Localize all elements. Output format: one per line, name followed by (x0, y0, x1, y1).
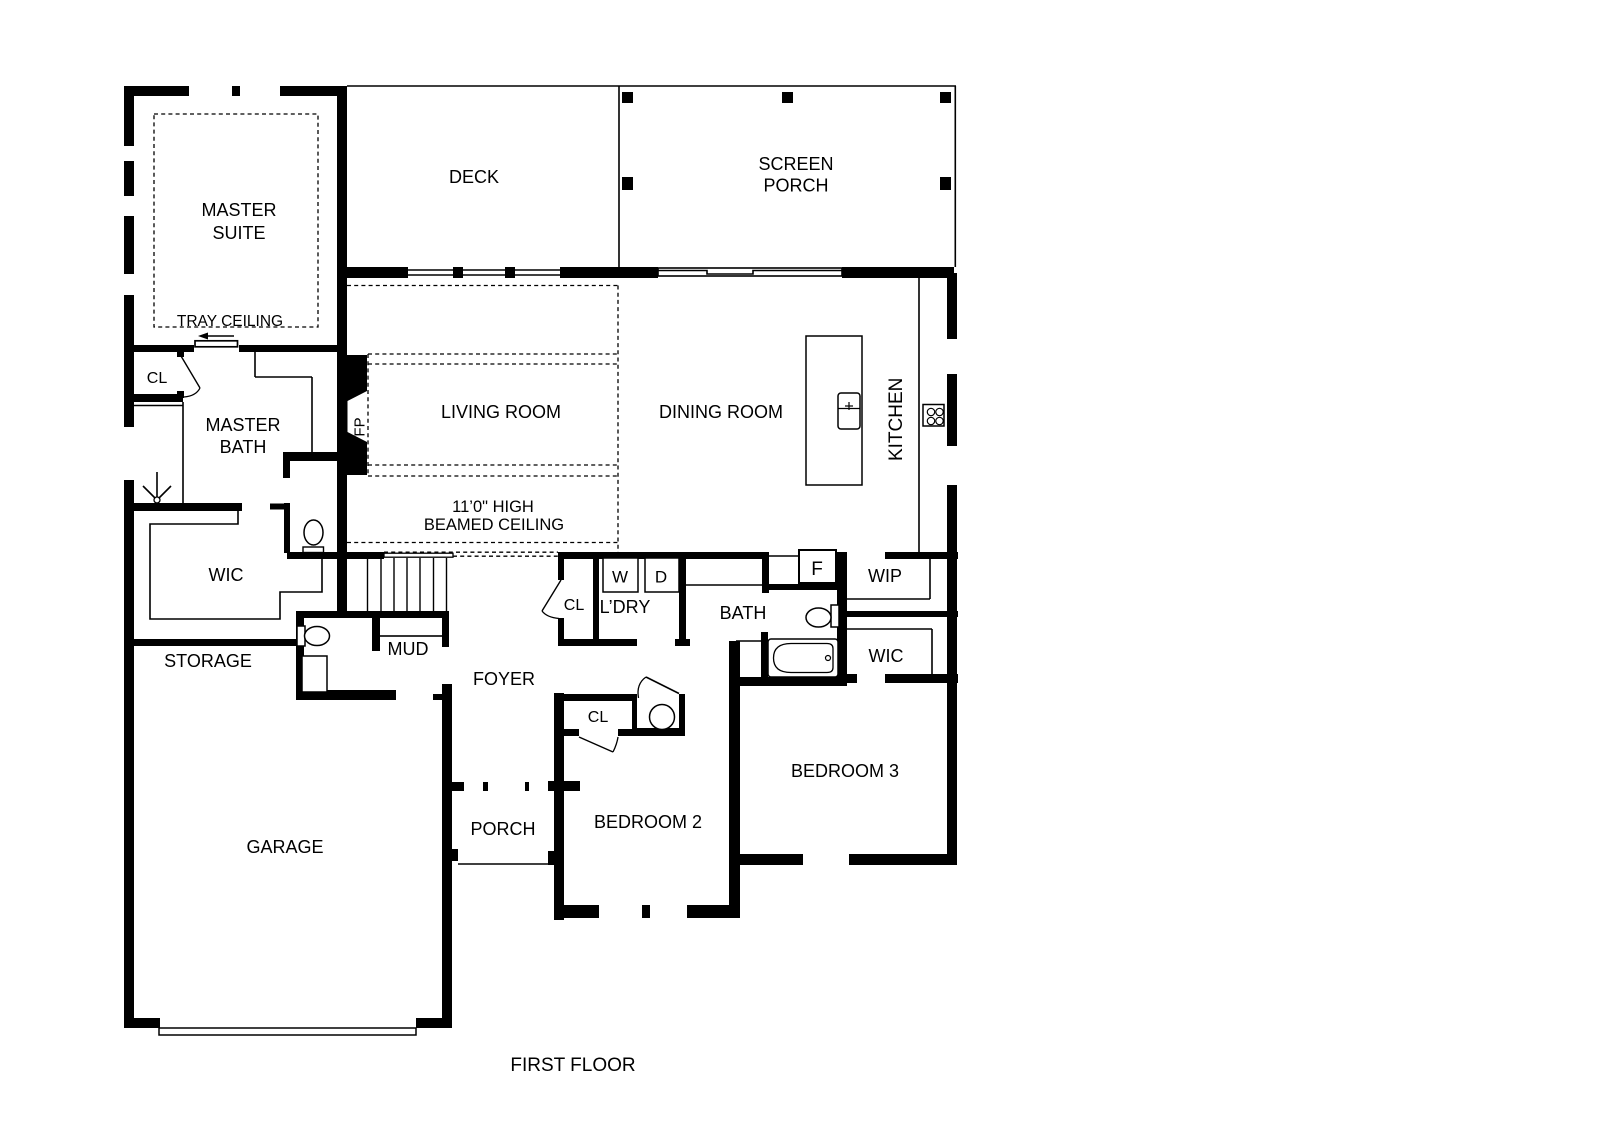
svg-text:PORCH: PORCH (763, 176, 828, 196)
svg-text:BEAMED CEILING: BEAMED CEILING (424, 516, 564, 534)
svg-text:FIRST FLOOR: FIRST FLOOR (510, 1055, 635, 1076)
svg-text:BEDROOM 3: BEDROOM 3 (791, 761, 899, 781)
svg-text:LIVING ROOM: LIVING ROOM (441, 402, 561, 422)
svg-text:WIC: WIC (209, 565, 244, 585)
svg-text:STORAGE: STORAGE (164, 651, 252, 671)
svg-text:MASTER: MASTER (205, 415, 280, 435)
svg-text:WIC: WIC (869, 646, 904, 666)
svg-text:SUITE: SUITE (212, 223, 265, 243)
svg-text:W: W (612, 568, 628, 587)
svg-text:MASTER: MASTER (201, 200, 276, 220)
svg-text:WIP: WIP (868, 566, 902, 586)
svg-text:L’DRY: L’DRY (600, 597, 651, 617)
svg-text:FP: FP (352, 417, 369, 436)
svg-text:CL: CL (588, 709, 609, 726)
svg-text:KITCHEN: KITCHEN (886, 378, 907, 461)
svg-text:MUD: MUD (388, 639, 429, 659)
svg-text:CL: CL (147, 370, 168, 387)
svg-text:D: D (655, 568, 667, 587)
svg-text:BEDROOM 2: BEDROOM 2 (594, 812, 702, 832)
svg-text:PORCH: PORCH (470, 819, 535, 839)
svg-text:GARAGE: GARAGE (246, 837, 323, 857)
svg-text:BATH: BATH (720, 603, 767, 623)
svg-text:BATH: BATH (220, 437, 267, 457)
svg-text:TRAY CEILING: TRAY CEILING (177, 313, 283, 330)
svg-text:SCREEN: SCREEN (758, 154, 833, 174)
svg-text:FOYER: FOYER (473, 669, 535, 689)
svg-text:11’0" HIGH: 11’0" HIGH (452, 498, 534, 516)
svg-text:DECK: DECK (449, 167, 499, 187)
svg-text:CL: CL (564, 597, 585, 614)
svg-text:DINING ROOM: DINING ROOM (659, 402, 783, 422)
svg-text:F: F (811, 559, 823, 580)
